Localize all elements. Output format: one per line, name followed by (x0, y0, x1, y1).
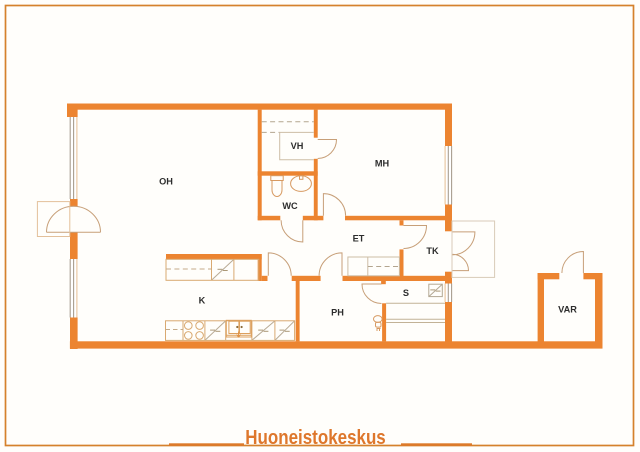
svg-text:PH: PH (331, 308, 344, 318)
svg-text:VAR: VAR (558, 305, 577, 315)
svg-text:WC: WC (282, 201, 298, 211)
svg-text:ET: ET (353, 233, 365, 243)
svg-text:MH: MH (375, 159, 390, 169)
svg-text:OH: OH (159, 177, 173, 187)
svg-text:S: S (403, 288, 409, 298)
svg-text:Huoneistokeskus: Huoneistokeskus (245, 427, 386, 449)
svg-text:TK: TK (426, 246, 439, 256)
svg-text:K: K (199, 296, 206, 306)
svg-text:VH: VH (291, 141, 304, 151)
